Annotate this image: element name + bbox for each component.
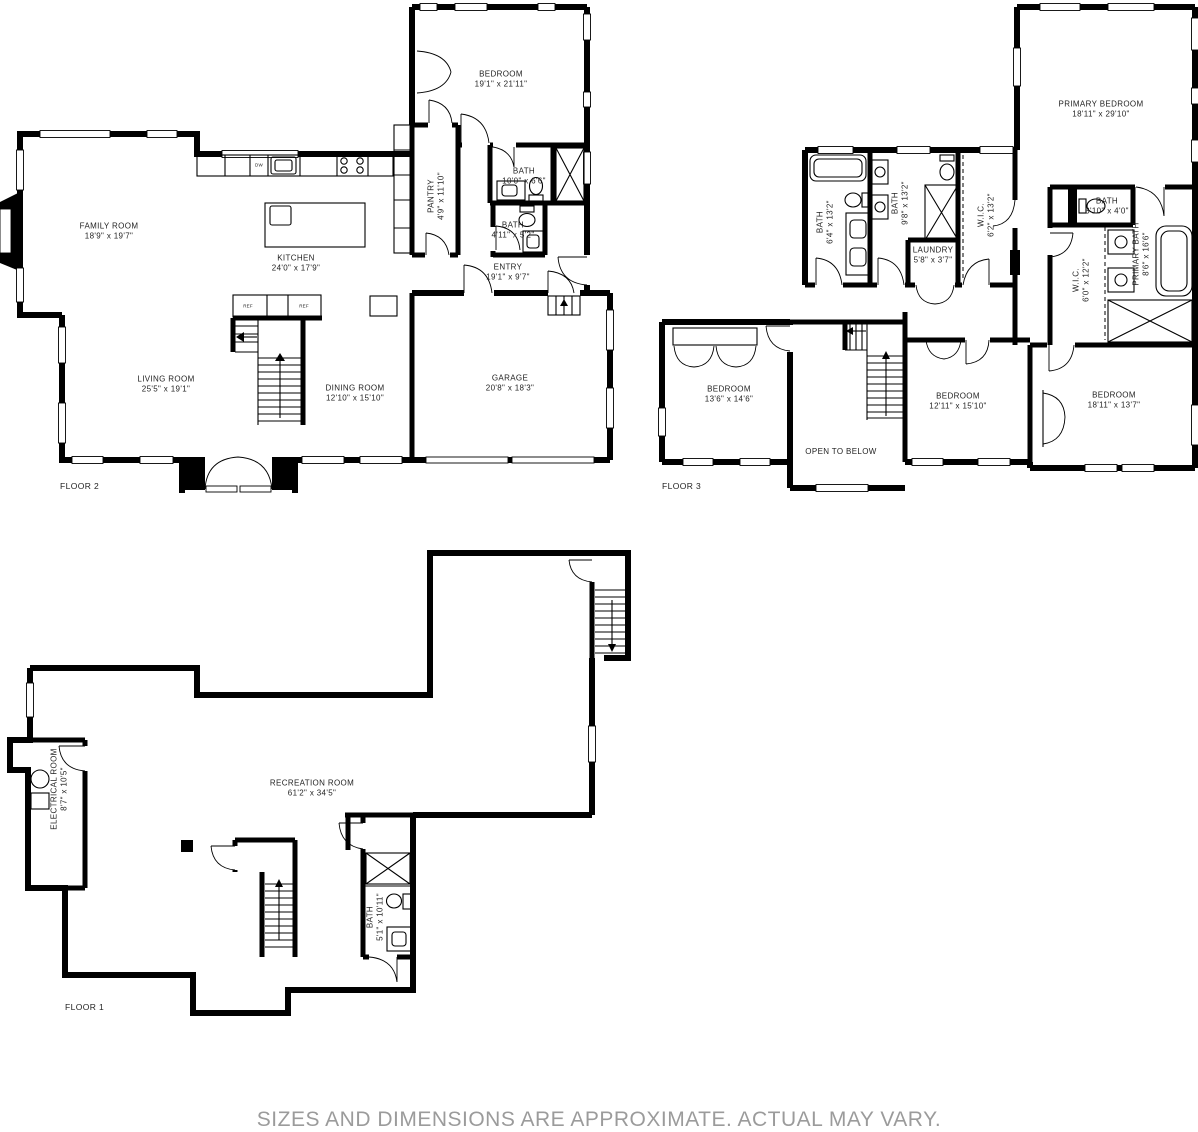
room-name: LAUNDRY	[913, 246, 954, 256]
room-name: BATH	[366, 906, 376, 928]
dishwasher-label: DW	[255, 163, 263, 168]
room-label-garage: GARAGE 20'8" x 18'3"	[486, 374, 534, 395]
room-dims: 6'2" x 13'2"	[987, 193, 997, 237]
room-dims: 5'1" x 10'11"	[376, 893, 386, 941]
room-name: ENTRY	[494, 263, 523, 273]
room-dims: 18'11" x 13'7"	[1088, 401, 1141, 411]
room-label-bedroom-f3-c: BEDROOM 18'11" x 13'7"	[1088, 391, 1141, 412]
room-name: ELECTRICAL ROOM	[50, 748, 60, 829]
room-dims: 12'10" x 15'10"	[326, 394, 384, 404]
room-dims: 6'0" x 12'2"	[1082, 258, 1092, 302]
room-label-bath-f3-a: BATH 6'4" x 13'2"	[816, 200, 837, 244]
room-dims: 12'11" x 15'10"	[929, 402, 986, 412]
room-name: GARAGE	[492, 374, 528, 384]
room-dims: 5'8" x 3'7"	[914, 256, 953, 266]
room-name: W.I.C.	[977, 203, 987, 227]
room-label-recreation-room: RECREATION ROOM 61'2" x 34'5"	[270, 779, 354, 800]
disclaimer-text: SIZES AND DIMENSIONS ARE APPROXIMATE. AC…	[257, 1108, 941, 1132]
room-label-bedroom-f3-a: BEDROOM 13'6" x 14'6"	[705, 385, 753, 406]
room-dims: 9'8" x 13'2"	[901, 181, 911, 225]
room-name: PRIMARY BEDROOM	[1059, 100, 1144, 110]
room-dims: 13'6" x 14'6"	[705, 395, 753, 405]
room-name: FAMILY ROOM	[80, 222, 139, 232]
room-dims: 6'4" x 13'2"	[826, 200, 836, 244]
room-dims: 61'2" x 34'5"	[288, 789, 336, 799]
room-label-primary-bedroom: PRIMARY BEDROOM 18'11" x 29'10"	[1059, 100, 1144, 121]
room-name: LIVING ROOM	[137, 375, 194, 385]
room-name: RECREATION ROOM	[270, 779, 354, 789]
room-name: BATH	[502, 221, 524, 231]
room-dims: 8'7" x 10'5"	[60, 767, 70, 811]
room-label-primary-bath: PRIMARY BATH 8'6" x 16'6"	[1132, 222, 1153, 285]
room-label-entry: ENTRY 19'1" x 9'7"	[486, 263, 530, 284]
room-name: BATH	[1096, 197, 1118, 207]
room-dims: 8'6" x 16'6"	[1142, 232, 1152, 276]
room-label-open-to-below: OPEN TO BELOW	[805, 447, 876, 457]
floor-3-label: FLOOR 3	[662, 481, 701, 491]
room-label-bath-f1: BATH 5'1" x 10'11"	[366, 893, 387, 941]
refrigerator-label: REF	[299, 304, 309, 309]
room-label-bedroom-f3-b: BEDROOM 12'11" x 15'10"	[929, 392, 986, 413]
room-name: BEDROOM	[936, 392, 980, 402]
room-dims: 10'0" x 6'6"	[502, 177, 546, 187]
room-name: PANTRY	[427, 179, 437, 213]
room-label-bath-f2-main: BATH 10'0" x 6'6"	[502, 167, 546, 188]
room-label-bath-f2-small: BATH 4'11" x 5'2"	[491, 221, 534, 242]
room-label-bath-f3-b: BATH 9'8" x 13'2"	[891, 181, 912, 225]
room-label-bedroom-f2: BEDROOM 19'1" x 21'11"	[475, 70, 528, 91]
room-name: BEDROOM	[707, 385, 751, 395]
room-label-wic-b: W.I.C. 6'0" x 12'2"	[1072, 258, 1093, 302]
room-name: BEDROOM	[1092, 391, 1136, 401]
room-label-dining-room: DINING ROOM 12'10" x 15'10"	[326, 384, 385, 405]
room-name: BEDROOM	[479, 70, 523, 80]
floor-2-label: FLOOR 2	[60, 481, 99, 491]
room-label-bath-f3-c: BATH 3'10" x 4'0"	[1085, 197, 1129, 218]
room-name: KITCHEN	[277, 254, 315, 264]
floorplan-image: FAMILY ROOM 18'9" x 19'7" KITCHEN 24'0" …	[0, 0, 1198, 1132]
room-dims: 19'1" x 21'11"	[475, 80, 528, 90]
room-dims: 3'10" x 4'0"	[1085, 207, 1129, 217]
room-dims: 20'8" x 18'3"	[486, 384, 534, 394]
room-dims: 18'9" x 19'7"	[85, 232, 133, 242]
room-dims: 4'9" x 11'10"	[437, 172, 447, 220]
room-dims: 18'11" x 29'10"	[1072, 110, 1129, 120]
room-name: PRIMARY BATH	[1132, 222, 1142, 285]
room-label-living-room: LIVING ROOM 25'5" x 19'1"	[137, 375, 194, 396]
floor-1-label: FLOOR 1	[65, 1002, 104, 1012]
room-dims: 25'5" x 19'1"	[142, 385, 190, 395]
room-label-electrical-room: ELECTRICAL ROOM 8'7" x 10'5"	[50, 748, 71, 829]
room-dims: 4'11" x 5'2"	[491, 231, 534, 241]
room-label-kitchen: KITCHEN 24'0" x 17'9"	[272, 254, 320, 275]
room-name: DINING ROOM	[326, 384, 385, 394]
room-label-laundry: LAUNDRY 5'8" x 3'7"	[913, 246, 954, 267]
room-dims: 19'1" x 9'7"	[486, 273, 530, 283]
floorplan-svg	[0, 0, 1198, 1132]
room-label-family-room: FAMILY ROOM 18'9" x 19'7"	[80, 222, 139, 243]
room-name: W.I.C.	[1072, 268, 1082, 292]
room-label-pantry: PANTRY 4'9" x 11'10"	[427, 172, 448, 220]
room-dims: 24'0" x 17'9"	[272, 264, 320, 274]
room-name: OPEN TO BELOW	[805, 447, 876, 457]
room-label-wic-a: W.I.C. 6'2" x 13'2"	[977, 193, 998, 237]
room-name: BATH	[891, 192, 901, 214]
refrigerator-label: REF	[243, 304, 253, 309]
room-name: BATH	[513, 167, 535, 177]
room-name: BATH	[816, 211, 826, 233]
